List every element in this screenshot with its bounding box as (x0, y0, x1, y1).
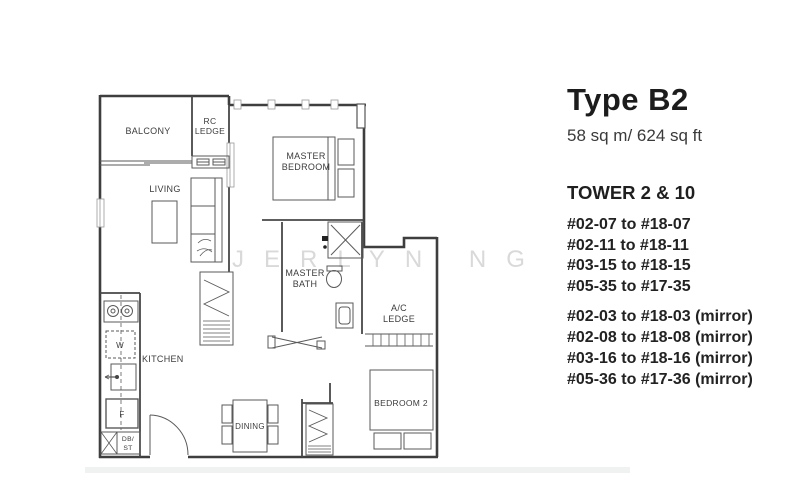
rc-ledge-vent (192, 156, 229, 168)
tower-heading: TOWER 2 & 10 (567, 182, 797, 204)
unit-list: #02-07 to #18-07 #02-11 to #18-11 #03-15… (567, 215, 797, 297)
kitchen-appliances (101, 295, 140, 454)
fridge-label: F (119, 410, 124, 419)
unit-range-mirror: #02-08 to #18-08 (mirror) (567, 327, 797, 348)
washer-label: W (116, 341, 124, 350)
room-label-ac: A/C (391, 303, 407, 313)
info-panel: Type B2 58 sq m/ 624 sq ft TOWER 2 & 10 … (567, 84, 797, 390)
unit-range-mirror: #02-03 to #18-03 (mirror) (567, 306, 797, 327)
room-label-master-bedroom: BEDROOM (282, 162, 331, 172)
unit-range: #02-11 to #18-11 (567, 236, 797, 257)
unit-list-mirror: #02-03 to #18-03 (mirror) #02-08 to #18-… (567, 306, 797, 390)
room-label-master: MASTER (286, 151, 326, 161)
room-label-st: ST (123, 445, 132, 452)
room-label-balcony: BALCONY (125, 126, 170, 136)
bedroom2-furniture (306, 370, 433, 455)
entrance-door (150, 415, 188, 455)
room-labels: BALCONY RC LEDGE LIVING MASTER BEDROOM M… (116, 116, 428, 452)
balcony-sliding-door (100, 161, 192, 165)
unit-range: #02-07 to #18-07 (567, 215, 797, 236)
room-label-bedroom2: BEDROOM 2 (374, 398, 428, 408)
room-label-kitchen: KITCHEN (142, 354, 184, 364)
unit-type-title: Type B2 (567, 84, 797, 115)
room-label-dining: DINING (235, 422, 265, 431)
unit-range-mirror: #03-16 to #18-16 (mirror) (567, 348, 797, 369)
room-label-rc-ledge: LEDGE (195, 126, 225, 136)
scan-edge (85, 467, 630, 473)
unit-area: 58 sq m/ 624 sq ft (567, 126, 797, 146)
room-label-living: LIVING (149, 184, 180, 194)
room-label-ac-ledge: LEDGE (383, 314, 415, 324)
room-label-master-bath-1: MASTER (285, 268, 325, 278)
unit-range-mirror: #05-36 to #17-36 (mirror) (567, 369, 797, 390)
ac-ledge-louvres (365, 334, 433, 346)
unit-range: #05-35 to #17-35 (567, 277, 797, 298)
room-label-rc: RC (204, 116, 217, 126)
corridor-wardrobe (200, 272, 233, 345)
room-label-master-bath-2: BATH (293, 279, 318, 289)
unit-range: #03-15 to #18-15 (567, 256, 797, 277)
room-label-db: DB/ (122, 436, 134, 443)
